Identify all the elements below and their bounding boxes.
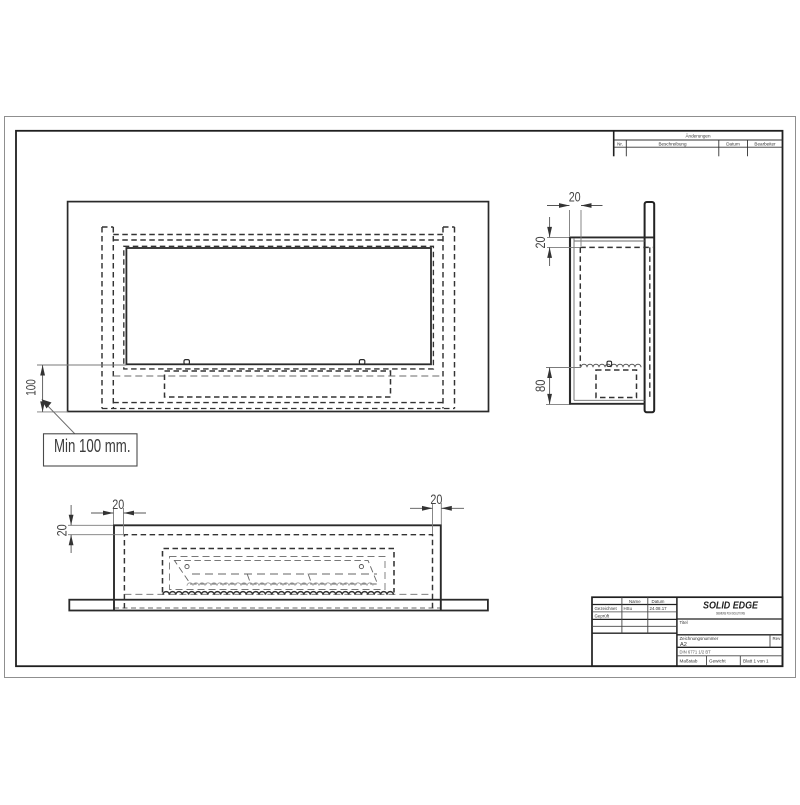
svg-text:Blatt 1 von 1: Blatt 1 von 1 (743, 659, 769, 664)
svg-text:Geprüft: Geprüft (595, 614, 610, 619)
svg-text:20: 20 (569, 189, 581, 204)
svg-text:HSu: HSu (624, 606, 633, 611)
svg-text:80: 80 (533, 380, 548, 393)
svg-text:24.08.17: 24.08.17 (650, 606, 668, 611)
svg-text:20: 20 (112, 497, 124, 512)
svg-text:Titel: Titel (680, 620, 688, 625)
svg-text:20: 20 (55, 524, 70, 536)
svg-text:Datum: Datum (652, 599, 665, 604)
svg-text:20: 20 (533, 237, 548, 249)
svg-text:Min 100 mm.: Min 100 mm. (54, 435, 131, 456)
svg-text:20: 20 (430, 492, 442, 507)
svg-text:Beschreibung: Beschreibung (658, 142, 687, 147)
svg-text:Nr.: Nr. (617, 142, 623, 147)
svg-text:A2: A2 (680, 642, 687, 648)
svg-text:Gewicht: Gewicht (709, 659, 726, 664)
svg-text:SIEMENS PLM SOLUTIONS: SIEMENS PLM SOLUTIONS (716, 611, 745, 616)
svg-text:Datum: Datum (726, 142, 740, 147)
svg-text:Maßstab: Maßstab (680, 659, 698, 664)
svg-text:Gezeichnet: Gezeichnet (595, 606, 618, 611)
svg-text:Änderungen: Änderungen (685, 133, 710, 139)
svg-text:Bearbeiter: Bearbeiter (754, 142, 776, 147)
svg-text:Zeichnungsnummer: Zeichnungsnummer (680, 636, 719, 641)
svg-text:100: 100 (24, 379, 39, 396)
svg-text:Name: Name (629, 599, 641, 604)
svg-text:DIN 6771 1/2 BT: DIN 6771 1/2 BT (680, 649, 712, 654)
svg-text:Rev: Rev (773, 636, 782, 641)
